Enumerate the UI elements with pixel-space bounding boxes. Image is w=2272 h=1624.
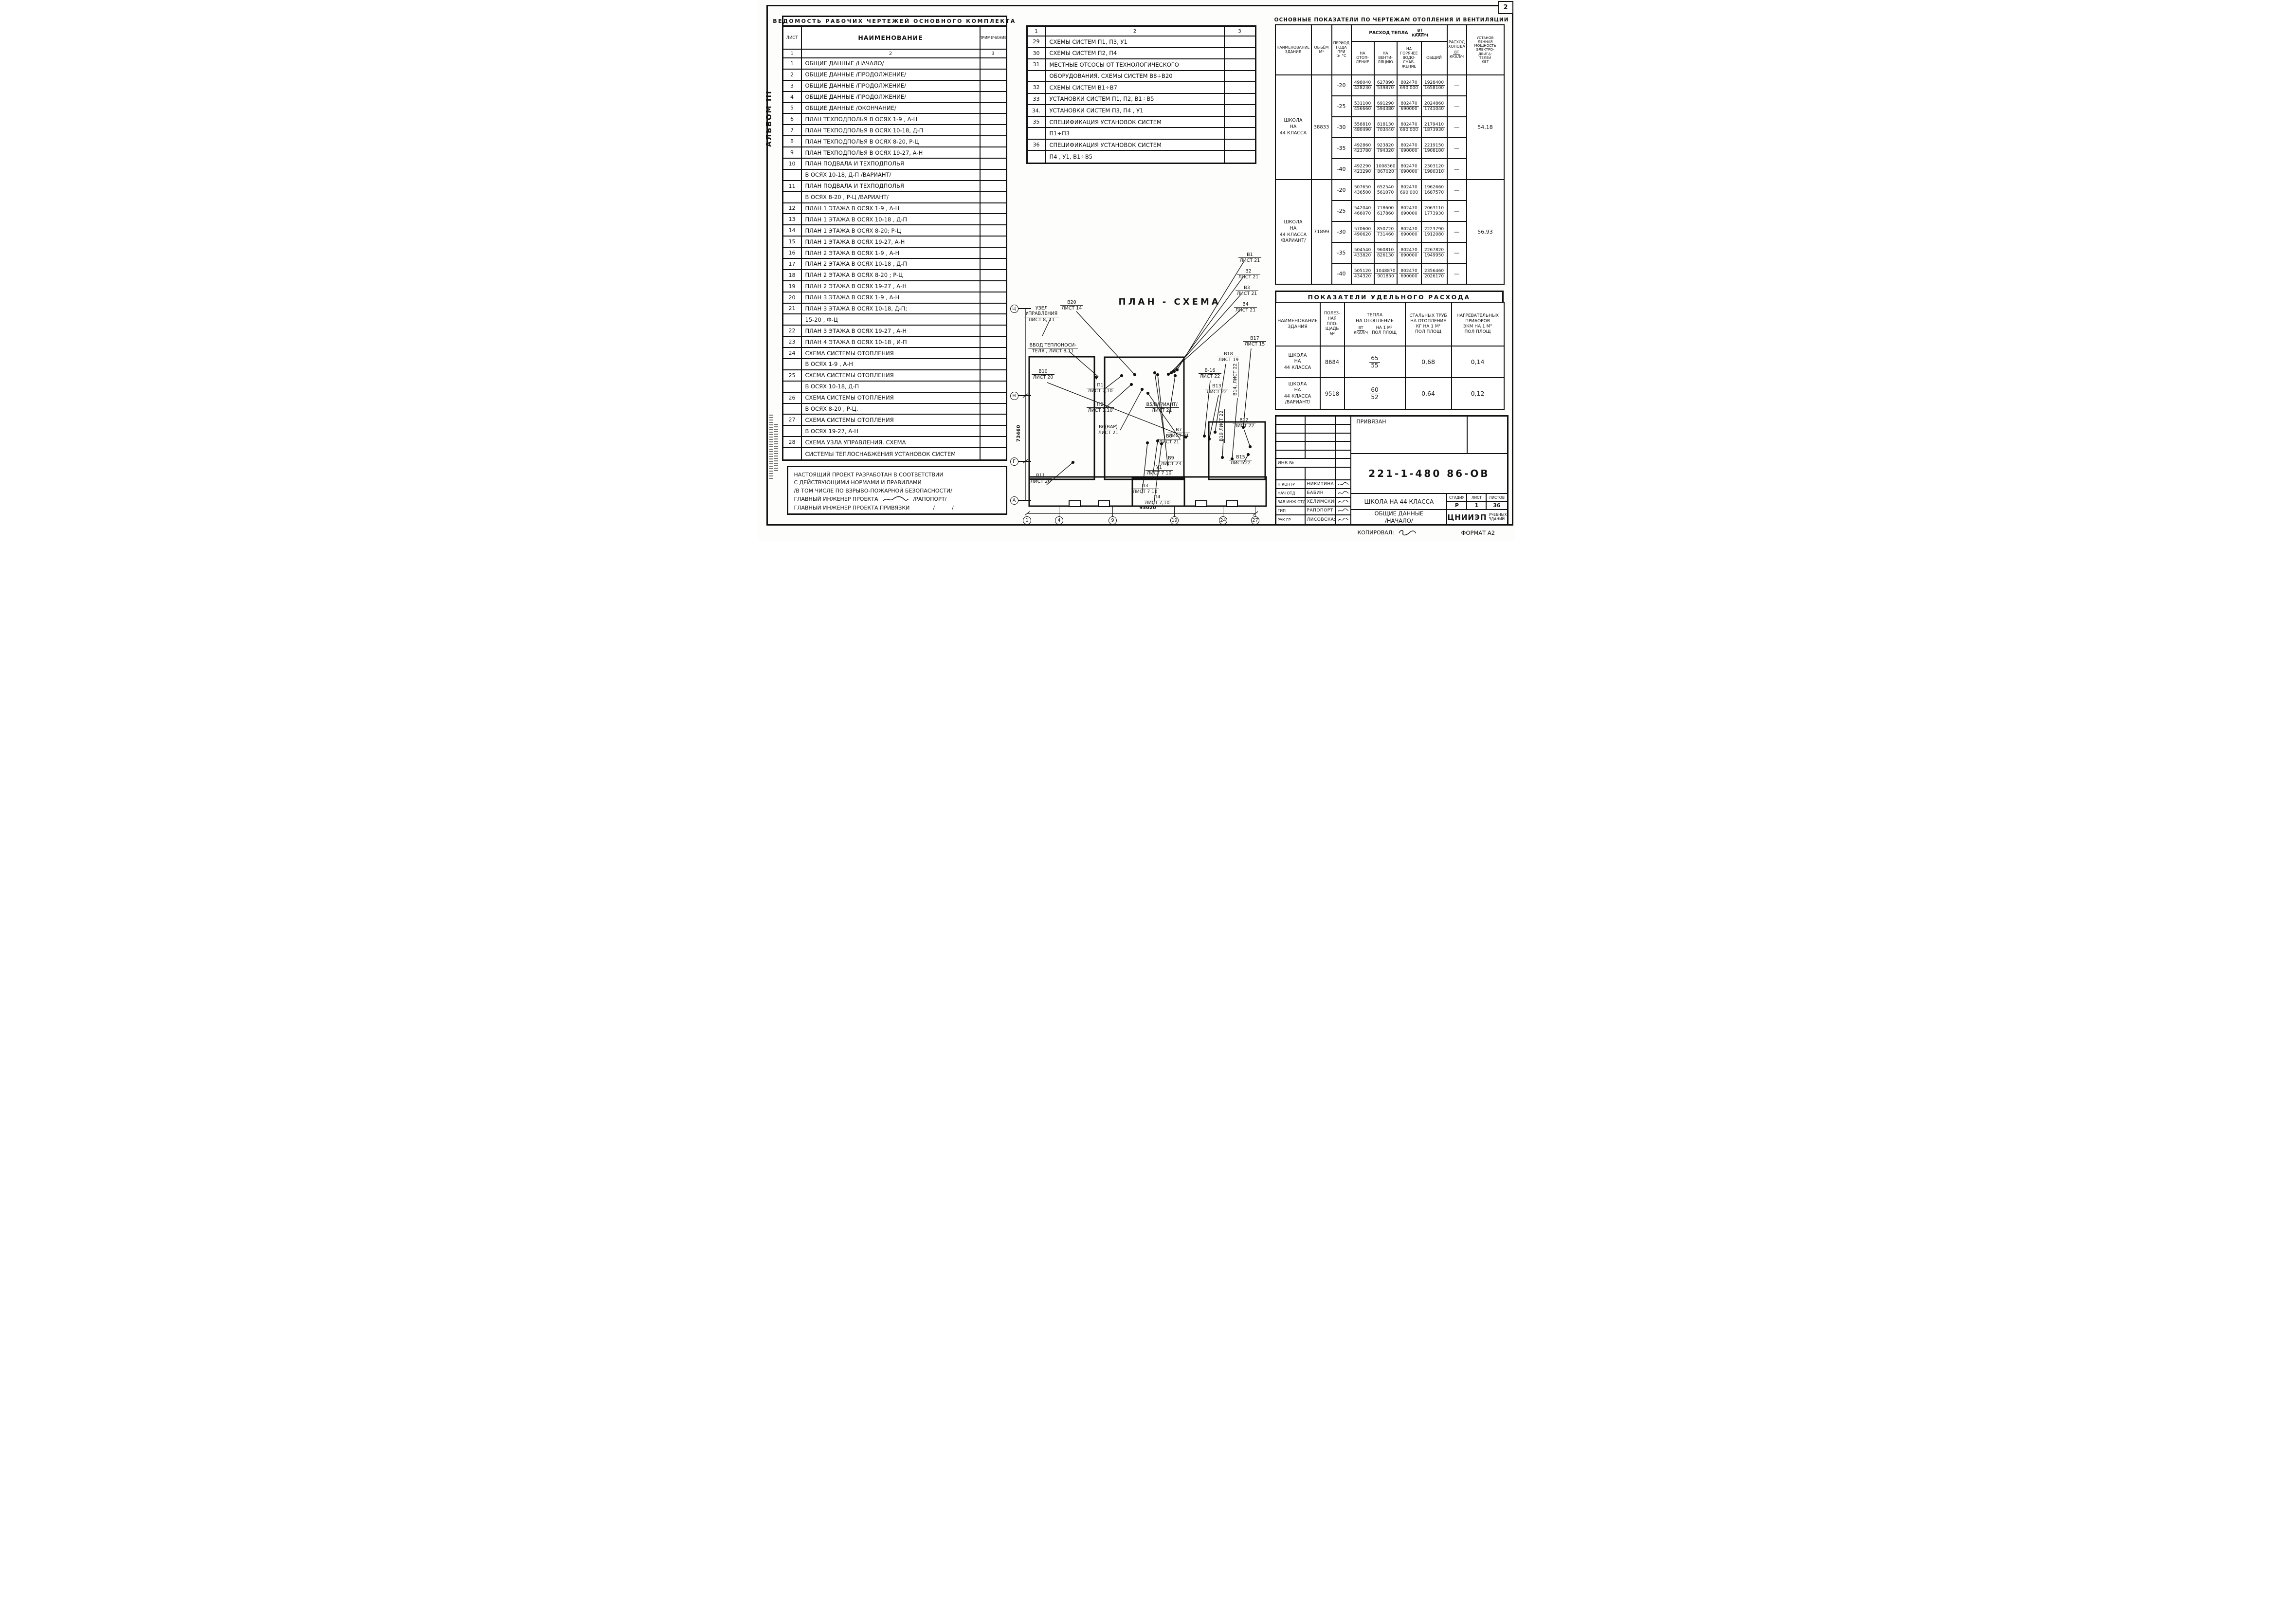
label-line: В2 — [1237, 269, 1260, 274]
plan-system-label: В18ЛИСТ 19 — [1217, 351, 1240, 363]
value-fraction: 802470690000 — [1399, 227, 1418, 237]
signature-cell — [1336, 489, 1351, 497]
grid-row — [1276, 434, 1351, 442]
stage-values: Р 1 36 — [1447, 502, 1507, 510]
sheet-number-cell: 6 — [783, 114, 802, 124]
value-fraction: 23564602026170 — [1423, 269, 1445, 279]
empty-cell — [1336, 459, 1351, 467]
drawing-name-cell: ОБЩИЕ ДАННЫЕ /ПРОДОЛЖЕНИЕ/ — [802, 70, 981, 80]
label-line: П3 — [1131, 483, 1159, 489]
total-cell: 22678201949950 — [1421, 242, 1447, 263]
axis-extension-line — [1223, 506, 1223, 516]
register-row: 5ОБЩИЕ ДАННЫЕ /ОКОНЧАНИЕ/ — [783, 103, 1006, 114]
signature-row: ГИПРАПОПОРТ — [1276, 507, 1351, 515]
label-line: ЛИСТ 21 — [1097, 430, 1120, 436]
drawing-name-cell: В ОСЯХ 8-20 , Р-Ц /ВАРИАНТ/ — [802, 192, 981, 202]
plan-system-label: УЗЕЛУПРАВЛЕНИЯЛИСТ 8, 11 — [1024, 306, 1059, 323]
vent-cell: 923820794320 — [1374, 138, 1397, 159]
vent-cell: 1008360867020 — [1374, 159, 1397, 180]
empty-cell — [1306, 434, 1336, 441]
sheet-number-cell — [783, 170, 802, 180]
value-fraction: 1008360867020 — [1375, 164, 1397, 175]
value-fraction: 802470690000 — [1399, 206, 1418, 217]
header-devices: НАГРЕВАТЕЛЬНЫХ ПРИБОРОВ ЭКМ НА 1 М² ПОЛ … — [1452, 302, 1504, 346]
register-row: 15ПЛАН 1 ЭТАЖА В ОСЯХ 19-27, А-Н — [783, 237, 1006, 248]
drawing-name-cell: В ОСЯХ 1-9 , А-Н — [802, 359, 981, 369]
value-fraction: 23031201980310 — [1423, 164, 1445, 175]
vent-cell: 652540561070 — [1374, 180, 1397, 201]
building-name-cell: ШКОЛА НА 44 КЛАССА — [1275, 75, 1311, 180]
col-number: 1 — [783, 50, 802, 57]
unit-fraction: ВТККАЛ/Ч — [1353, 326, 1369, 335]
value-fraction: 802470690 000 — [1399, 80, 1419, 91]
plan-system-label: П4ЛИСТ 7,10 — [1144, 494, 1171, 506]
value-fraction: 802470690000 — [1399, 248, 1418, 258]
album-label: АЛЬБОМ III — [764, 90, 773, 147]
name-cell: НИКИТИНА — [1306, 480, 1336, 488]
note-cell — [981, 337, 1006, 347]
header-cold: РАСХОД ХОЛОДА ВТККАЛ/Ч — [1447, 25, 1467, 75]
register-row: 23ПЛАН 4 ЭТАЖА В ОСЯХ 10-18 , И-П — [783, 337, 1006, 348]
drawing-name-cell: ОБЩИЕ ДАННЫЕ /ПРОДОЛЖЕНИЕ/ — [802, 92, 981, 102]
empty-cell — [1336, 451, 1351, 458]
drawing-name-cell: В ОСЯХ 8-20 , Р-Ц. — [802, 404, 981, 414]
value-fraction: 542040466070 — [1353, 206, 1372, 217]
drawing-name-cell: ПЛАН 3 ЭТАЖА В ОСЯХ 10-18, Д-П; — [802, 304, 981, 314]
register-row: СИСТЕМЫ ТЕПЛОСНАБЖЕНИЯ УСТАНОВОК СИСТЕМ — [783, 448, 1006, 459]
note-cell — [981, 382, 1006, 392]
sheet-title: ОБЩИЕ ДАННЫЕ /НАЧАЛО/ — [1351, 510, 1446, 524]
drawing-name-cell: ПЛАН ТЕХПОДПОЛЬЯ В ОСЯХ 10-18, Д-П — [802, 125, 981, 135]
volume-cell: 38833 — [1311, 75, 1332, 180]
value-fraction: 802470690000 — [1399, 269, 1418, 279]
register-row: 25СХЕМА СИСТЕМЫ ОТОПЛЕНИЯ — [783, 370, 1006, 382]
drawing-name-cell: ПЛАН ПОДВАЛА И ТЕХПОДПОЛЬЯ — [802, 181, 981, 191]
sheet-number-cell — [783, 314, 802, 325]
register-row: 13ПЛАН 1 ЭТАЖА В ОСЯХ 10-18 , Д-П — [783, 214, 1006, 225]
label-line: П2 — [1087, 402, 1114, 408]
register-row: 24СХЕМА СИСТЕМЫ ОТОПЛЕНИЯ — [783, 348, 1006, 359]
col-header-name: НАИМЕНОВАНИЕ — [802, 27, 981, 49]
sheet-number-cell: 14 — [783, 225, 802, 236]
sheet-number-cell — [1028, 71, 1046, 82]
drawing-name-cell: СХЕМА СИСТЕМЫ ОТОПЛЕНИЯ — [802, 348, 981, 358]
header-heat-group: РАСХОД ТЕПЛА ВТККАЛ/Ч — [1351, 25, 1447, 41]
register-row: В ОСЯХ 19-27, А-Н — [783, 426, 1006, 437]
drawing-name-cell: ПЛАН 2 ЭТАЖА В ОСЯХ 19-27 , А-Н — [802, 281, 981, 292]
label-line: ВВОД ТЕПЛОНОСИ- — [1028, 343, 1078, 348]
heat-cell: 507650436500 — [1351, 180, 1374, 201]
note-cell — [981, 281, 1006, 292]
drawing-name-cell: ПЛАН ТЕХПОДПОЛЬЯ В ОСЯХ 1-9 , А-Н — [802, 114, 981, 124]
note-cell — [981, 214, 1006, 224]
axis-circle: 24 — [1219, 516, 1227, 525]
sheet-number-cell: 20 — [783, 292, 802, 303]
vent-cell: 818130703440 — [1374, 117, 1397, 138]
stamp-smudge — [774, 422, 778, 471]
drawing-name-cell: ОБЩИЕ ДАННЫЕ /ПРОДОЛЖЕНИЕ/ — [802, 81, 981, 91]
value-fraction: 504540433820 — [1353, 248, 1372, 258]
label-line: ЛИСТ 22 — [1199, 374, 1222, 379]
heat-cell: 498040428230 — [1351, 75, 1374, 96]
col-header-note: ПРИМЕЧАНИЕ — [981, 27, 1006, 49]
note-cell — [981, 81, 1006, 91]
register-row: 30СХЕМЫ СИСТЕМ П2, П4 — [1028, 48, 1255, 60]
value-fraction: 558810480490 — [1353, 122, 1372, 133]
vent-cell: 960810826130 — [1374, 242, 1397, 263]
header-building: НАИМЕНОВАНИЕ ЗДАНИЯ — [1275, 25, 1311, 75]
drawing-name-cell: СХЕМА СИСТЕМЫ ОТОПЛЕНИЯ — [802, 415, 981, 425]
role-cell: НАЧ ОТД — [1276, 489, 1306, 497]
sheet-number-cell: 9 — [783, 147, 802, 158]
note-cell — [981, 404, 1006, 414]
note-cell — [981, 70, 1006, 80]
value-fraction: 718600617860 — [1376, 206, 1395, 217]
sheet-number-cell: 7 — [783, 125, 802, 135]
axis-extension-line — [1174, 506, 1175, 516]
value-fraction: 1048870901850 — [1375, 269, 1397, 279]
note-cell — [981, 225, 1006, 236]
name-cell: ЛИСОВСКАЯ — [1306, 515, 1336, 524]
note-cell — [981, 437, 1006, 447]
sheet-number-cell: 13 — [783, 214, 802, 224]
register-row: В ОСЯХ 10-18, Д-П /ВАРИАНТ/ — [783, 170, 1006, 181]
note-cell — [981, 292, 1006, 303]
hw-cell: 802470690000 — [1397, 96, 1421, 117]
value-fraction: 802470690 000 — [1399, 185, 1419, 196]
value-fraction: 20248601741040 — [1423, 101, 1445, 112]
note-cell — [1225, 94, 1255, 105]
note-cell — [981, 259, 1006, 269]
heat-cell: 558810480490 — [1351, 117, 1374, 138]
label-line: ЛИСТ 7,10 — [1144, 500, 1171, 506]
value-fraction: 19626601687570 — [1423, 185, 1445, 196]
sheet-number-cell — [783, 448, 802, 459]
power-cell: 54,18 — [1467, 75, 1504, 180]
sheet-number-cell: 30 — [1028, 48, 1046, 59]
grid-row — [1276, 451, 1351, 459]
axis-extension-line — [1018, 500, 1031, 500]
axis-circle: Н — [1010, 392, 1018, 400]
document-number: 221-1-480 86-ОВ — [1351, 454, 1507, 494]
note-cell — [981, 415, 1006, 425]
total-cell: 22237901912080 — [1421, 221, 1447, 242]
page-number-box: 2 — [1498, 1, 1513, 14]
register-row: 29СХЕМЫ СИСТЕМ П1, П3, У1 — [1028, 36, 1255, 48]
empty-cell — [1276, 425, 1306, 432]
label-line: В20 — [1060, 300, 1084, 306]
label-line: П1 — [1087, 383, 1114, 388]
drawing-name-cell: СХЕМА СИСТЕМЫ ОТОПЛЕНИЯ — [802, 393, 981, 403]
value-fraction: 22678201949950 — [1423, 248, 1445, 258]
note-cell — [981, 370, 1006, 381]
header-pipes: СТАЛЬНЫХ ТРУБ НА ОТОПЛЕНИЕ КГ НА 1 М² ПО… — [1405, 302, 1452, 346]
signature-icon — [1337, 490, 1349, 496]
sheet-number-cell: 22 — [783, 326, 802, 336]
hw-cell: 802470690000 — [1397, 221, 1421, 242]
hw-cell: 802470690000 — [1397, 138, 1421, 159]
register-row: 9ПЛАН ТЕХПОДПОЛЬЯ В ОСЯХ 19-27, А-Н — [783, 147, 1006, 159]
sheet-number-cell — [783, 192, 802, 202]
period-cell: -20 — [1332, 180, 1351, 201]
hw-cell: 802470690 000 — [1397, 117, 1421, 138]
sheet-number-cell: 24 — [783, 348, 802, 358]
cold-cell: — — [1447, 159, 1467, 180]
value-fraction: 19284001658100 — [1423, 80, 1445, 91]
register-row: 19ПЛАН 2 ЭТАЖА В ОСЯХ 19-27 , А-Н — [783, 281, 1006, 292]
pipes-cell: 0,64 — [1405, 378, 1452, 409]
value-fraction: 960810826130 — [1376, 248, 1395, 258]
sheet-number-cell: 32 — [1028, 82, 1046, 93]
note-cell — [981, 248, 1006, 258]
note-cell — [981, 270, 1006, 280]
note-line: НАСТОЯЩИЙ ПРОЕКТ РАЗРАБОТАН В СООТВЕТСТВ… — [794, 472, 1000, 478]
register-row: 36СПЕЦИФИКАЦИЯ УСТАНОВОК СИСТЕМ — [1028, 140, 1255, 151]
drawing-name-cell: ПЛАН 3 ЭТАЖА В ОСЯХ 19-27 , А-Н — [802, 326, 981, 336]
note-cell — [981, 170, 1006, 180]
sheet-number-cell: 36 — [1028, 140, 1046, 150]
value-fraction: 923820794320 — [1376, 143, 1395, 154]
register-row: 20ПЛАН 3 ЭТАЖА В ОСЯХ 1-9 , А-Н — [783, 292, 1006, 304]
unit-fraction: ВТККАЛ/Ч — [1449, 51, 1465, 59]
attached-cell: ПРИВЯЗАН — [1351, 417, 1507, 454]
drawing-name-cell: СХЕМА УЗЛА УПРАВЛЕНИЯ. СХЕМА — [802, 437, 981, 447]
note-cell — [1225, 59, 1255, 70]
note-cell — [1225, 71, 1255, 82]
plan-system-label: В17ЛИСТ 15 — [1243, 336, 1267, 347]
signature-icon — [1337, 481, 1349, 487]
copied-by: КОПИРОВАЛ: — [1358, 529, 1417, 536]
cold-cell: — — [1447, 117, 1467, 138]
register-row: 14ПЛАН 1 ЭТАЖА В ОСЯХ 8-20; Р-Ц — [783, 225, 1006, 237]
heat-cell: 504540433820 — [1351, 242, 1374, 263]
value-fraction: 505120434320 — [1353, 269, 1372, 279]
register-row: В ОСЯХ 8-20 , Р-Ц. — [783, 404, 1006, 415]
empty-cell — [1276, 417, 1306, 424]
drawing-name-cell: ПЛАН 1 ЭТАЖА В ОСЯХ 8-20; Р-Ц — [802, 225, 981, 236]
note-cell — [1225, 82, 1255, 93]
value-fraction: 850720731460 — [1376, 227, 1395, 237]
plan-system-label: П3ЛИСТ 7 10 — [1131, 483, 1159, 495]
note-cell — [981, 426, 1006, 436]
consumption-row: ШКОЛА НА 44 КЛАССА /ВАРИАНТ/951860520,64… — [1275, 378, 1504, 409]
building-name-cell: ШКОЛА НА 44 КЛАССА /ВАРИАНТ/ — [1275, 180, 1311, 284]
title-block-signatures: ИНВ №Н КОНТРНИКИТИНАНАЧ ОТДБАБИНЗАВ.ИНЖ.… — [1276, 417, 1352, 524]
period-cell: -30 — [1332, 221, 1351, 242]
label-line: ЛИСТ 21 — [1167, 433, 1191, 438]
signature-cell — [1336, 507, 1351, 514]
register-row: В ОСЯХ 1-9 , А-Н — [783, 359, 1006, 370]
value-fraction: 21794101873930 — [1423, 122, 1445, 133]
empty-cell — [1276, 468, 1306, 479]
note-cell — [981, 159, 1006, 169]
vent-cell: 691290594380 — [1374, 96, 1397, 117]
note-line: /В ТОМ ЧИСЛЕ ПО ВЗРЫВО-ПОЖАРНОЙ БЕЗОПАСН… — [794, 488, 1000, 494]
org-abbr: ЦНИИЭП — [1447, 513, 1487, 522]
sheet-number-cell: 17 — [783, 259, 802, 269]
drawing-name-cell: ОБЩИЕ ДАННЫЕ /ОКОНЧАНИЕ/ — [802, 103, 981, 113]
plan-system-label: В20ЛИСТ 14 — [1060, 300, 1084, 311]
heat-cell: 570600490620 — [1351, 221, 1374, 242]
axis-extension-line — [1018, 461, 1031, 461]
note-cell — [981, 348, 1006, 358]
drawing-name-cell: ПЛАН 1 ЭТАЖА В ОСЯХ 10-18 , Д-П — [802, 214, 981, 224]
header-period: ПЕРИОД ГОДА ПРИ tн °С — [1332, 25, 1351, 75]
sheet-number-cell: 4 — [783, 92, 802, 102]
total-cell: 19626601687570 — [1421, 180, 1447, 201]
drawing-name-cell: ПЛАН 2 ЭТАЖА В ОСЯХ 10-18 , Д-П — [802, 259, 981, 269]
grid-row — [1276, 468, 1351, 480]
sheet-number-cell: 28 — [783, 437, 802, 447]
axis-circle: 4 — [1055, 516, 1063, 525]
label-line: В9 — [1160, 456, 1183, 461]
sheet-number-cell: 19 — [783, 281, 802, 292]
drawing-name-cell: В ОСЯХ 19-27, А-Н — [802, 426, 981, 436]
value-fraction: 802470690000 — [1399, 164, 1418, 175]
header-volume: ОБЪЁМ М³ — [1311, 25, 1332, 75]
note-line: С ДЕЙСТВУЮЩИМИ НОРМАМИ И ПРАВИЛАМИ — [794, 479, 1000, 486]
drawing-name-cell: ОБОРУДОВАНИЯ. СХЕМЫ СИСТЕМ В8÷В20 — [1046, 71, 1225, 82]
heat-cell: 492290423290 — [1351, 159, 1374, 180]
title-block: ИНВ №Н КОНТРНИКИТИНАНАЧ ОТДБАБИНЗАВ.ИНЖ.… — [1275, 415, 1509, 526]
indicator-row: ШКОЛА НА 44 КЛАССА /ВАРИАНТ/71899-205076… — [1275, 180, 1504, 201]
sheet-number-cell: 8 — [783, 136, 802, 146]
vent-cell: 1048870901850 — [1374, 263, 1397, 284]
plan-system-label: В2ЛИСТ 21 — [1237, 269, 1260, 280]
signature-row: ЗАВ.ИНЖ.ОТДХЕЛИМСКИЙ — [1276, 498, 1351, 507]
grid-row — [1276, 417, 1351, 425]
axis-extension-line — [1112, 506, 1113, 516]
signature-cell — [1336, 515, 1351, 524]
label-line: ЛИСТ 14 — [1060, 306, 1084, 311]
plan-system-label: П1ЛИСТ 7,10 — [1087, 383, 1114, 394]
note-cell — [1225, 105, 1255, 116]
label-line: В10 — [1032, 369, 1055, 375]
role-cell: ЗАВ.ИНЖ.ОТД — [1276, 498, 1306, 506]
format-label: ФОРМАТ А2 — [1461, 529, 1495, 536]
label-line: В4 — [1234, 302, 1257, 308]
sheet-number-cell: 11 — [783, 181, 802, 191]
plan-system-label: В13ЛИСТ 22 — [1205, 383, 1229, 395]
register-row: 32СХЕМЫ СИСТЕМ В1÷В7 — [1028, 82, 1255, 94]
drawing-name-cell: УСТАНОВКИ СИСТЕМ П3, П4 , У1 — [1046, 105, 1225, 116]
drawing-name-cell: СХЕМЫ СИСТЕМ П1, П3, У1 — [1046, 36, 1225, 47]
axis-extension-line — [1027, 506, 1027, 516]
plan-system-label: ВВОД ТЕПЛОНОСИ-ТЕЛЯ , ЛИСТ 8,11 — [1028, 343, 1078, 354]
stage-headers: СТАДИЯ ЛИСТ ЛИСТОВ — [1447, 494, 1507, 502]
role-cell: Н КОНТР — [1276, 480, 1306, 488]
total-cell: 19284001658100 — [1421, 75, 1447, 96]
register-row: 1ОБЩИЕ ДАННЫЕ /НАЧАЛО/ — [783, 58, 1006, 70]
value-fraction: 6052 — [1369, 387, 1380, 401]
register-row: 26СХЕМА СИСТЕМЫ ОТОПЛЕНИЯ — [783, 393, 1006, 404]
col-number: 2 — [802, 50, 981, 57]
plan-system-label: В19 ЛИСТ 22 — [1219, 409, 1225, 443]
stage-value: Р — [1447, 502, 1467, 509]
note-cell — [981, 92, 1006, 102]
value-fraction: 802470690000 — [1399, 143, 1418, 154]
specific-consumption-table: ПОКАЗАТЕЛИ УДЕЛЬНОГО РАСХОДА НАИМЕНОВАНИ… — [1275, 291, 1504, 410]
label-line: ЛИСТ 22 — [1205, 389, 1229, 395]
area-cell: 9518 — [1320, 378, 1345, 409]
total-cell: 22191501908100 — [1421, 138, 1447, 159]
note-cell — [981, 203, 1006, 214]
value-fraction: 492860423780 — [1353, 143, 1372, 154]
register-row: 35СПЕЦИФИКАЦИЯ УСТАНОВОК СИСТЕМ — [1028, 117, 1255, 128]
drawing-name-cell: П1÷П3 — [1046, 128, 1225, 139]
period-cell: -25 — [1332, 96, 1351, 117]
devices-cell: 0,12 — [1452, 378, 1504, 409]
label-line: В15 — [1229, 455, 1253, 460]
header-total: ОБЩИЙ — [1421, 41, 1447, 75]
note-cell — [981, 393, 1006, 403]
drawing-name-cell: ОБЩИЕ ДАННЫЕ /НАЧАЛО/ — [802, 58, 981, 69]
sheet-number-cell — [1028, 151, 1046, 163]
register-rows: 29СХЕМЫ СИСТЕМ П1, П3, У130СХЕМЫ СИСТЕМ … — [1028, 36, 1255, 163]
period-cell: -25 — [1332, 201, 1351, 221]
cold-cell: — — [1447, 138, 1467, 159]
register-row: 7ПЛАН ТЕХПОДПОЛЬЯ В ОСЯХ 10-18, Д-П — [783, 125, 1006, 136]
header-heat-specific: ТЕПЛА НА ОТОПЛЕНИЕ ВТККАЛ/Ч НА 1 М² ПОЛ … — [1345, 302, 1405, 346]
note-cell — [1225, 117, 1255, 128]
label-line: В18 — [1217, 351, 1240, 357]
plan-system-label: В1ЛИСТ 21 — [1238, 252, 1262, 264]
label-line: В11 — [1029, 473, 1053, 479]
col-header-sheet: ЛИСТ — [783, 27, 802, 49]
note-cell — [1225, 48, 1255, 59]
value-fraction: 22237901912080 — [1423, 227, 1445, 237]
table-header: ЛИСТ НАИМЕНОВАНИЕ ПРИМЕЧАНИЕ — [783, 27, 1006, 50]
volume-cell: 71899 — [1311, 180, 1332, 284]
hw-cell: 802470690 000 — [1397, 180, 1421, 201]
note-cell — [981, 125, 1006, 135]
sheet-number-cell: 23 — [783, 337, 802, 347]
grid-row — [1276, 425, 1351, 433]
sheet-number-cell: 3 — [783, 81, 802, 91]
label-line: В13 — [1205, 383, 1229, 389]
period-cell: -40 — [1332, 159, 1351, 180]
plan-system-label: В10ЛИСТ 20 — [1032, 369, 1055, 381]
drawing-name-cell: В ОСЯХ 10-18, Д-П — [802, 382, 981, 392]
note-cell — [981, 304, 1006, 314]
empty-cell — [1276, 434, 1306, 441]
sheet-number-cell: 21 — [783, 304, 802, 314]
axis-circle: 9 — [1109, 516, 1117, 525]
drawing-name-cell: СХЕМЫ СИСТЕМ В1÷В7 — [1046, 82, 1225, 93]
register-row: В ОСЯХ 10-18, Д-П — [783, 382, 1006, 393]
axis-extension-line — [1018, 395, 1031, 396]
cold-cell: — — [1447, 221, 1467, 242]
pipes-cell: 0,68 — [1405, 346, 1452, 378]
label-line: ЛИСТ 21 — [1158, 439, 1181, 445]
register-row: 6ПЛАН ТЕХПОДПОЛЬЯ В ОСЯХ 1-9 , А-Н — [783, 114, 1006, 125]
note-cell — [981, 237, 1006, 247]
drawing-name-cell: ПЛАН 2 ЭТАЖА В ОСЯХ 1-9 , А-Н — [802, 248, 981, 258]
axis-circle: Г — [1010, 457, 1018, 466]
drawing-name-cell: ПЛАН 2 ЭТАЖА В ОСЯХ 8-20 ; Р-Ц — [802, 270, 981, 280]
column-numbers-row: 1 2 3 — [1028, 27, 1255, 36]
label-line: В14, ЛИСТ 22 — [1233, 362, 1238, 397]
label-line: ЛИСТ 22 — [1233, 423, 1256, 429]
sheet-number-cell: 26 — [783, 393, 802, 403]
axis-circle: А — [1010, 496, 1018, 505]
label-line: В7 — [1167, 427, 1191, 433]
hw-cell: 802470690000 — [1397, 159, 1421, 180]
drawing-register-table-continued: 1 2 3 29СХЕМЫ СИСТЕМ П1, П3, У130СХЕМЫ С… — [1026, 25, 1256, 164]
period-cell: -35 — [1332, 138, 1351, 159]
empty-cell — [1336, 434, 1351, 441]
label-line: В3 — [1236, 285, 1259, 291]
